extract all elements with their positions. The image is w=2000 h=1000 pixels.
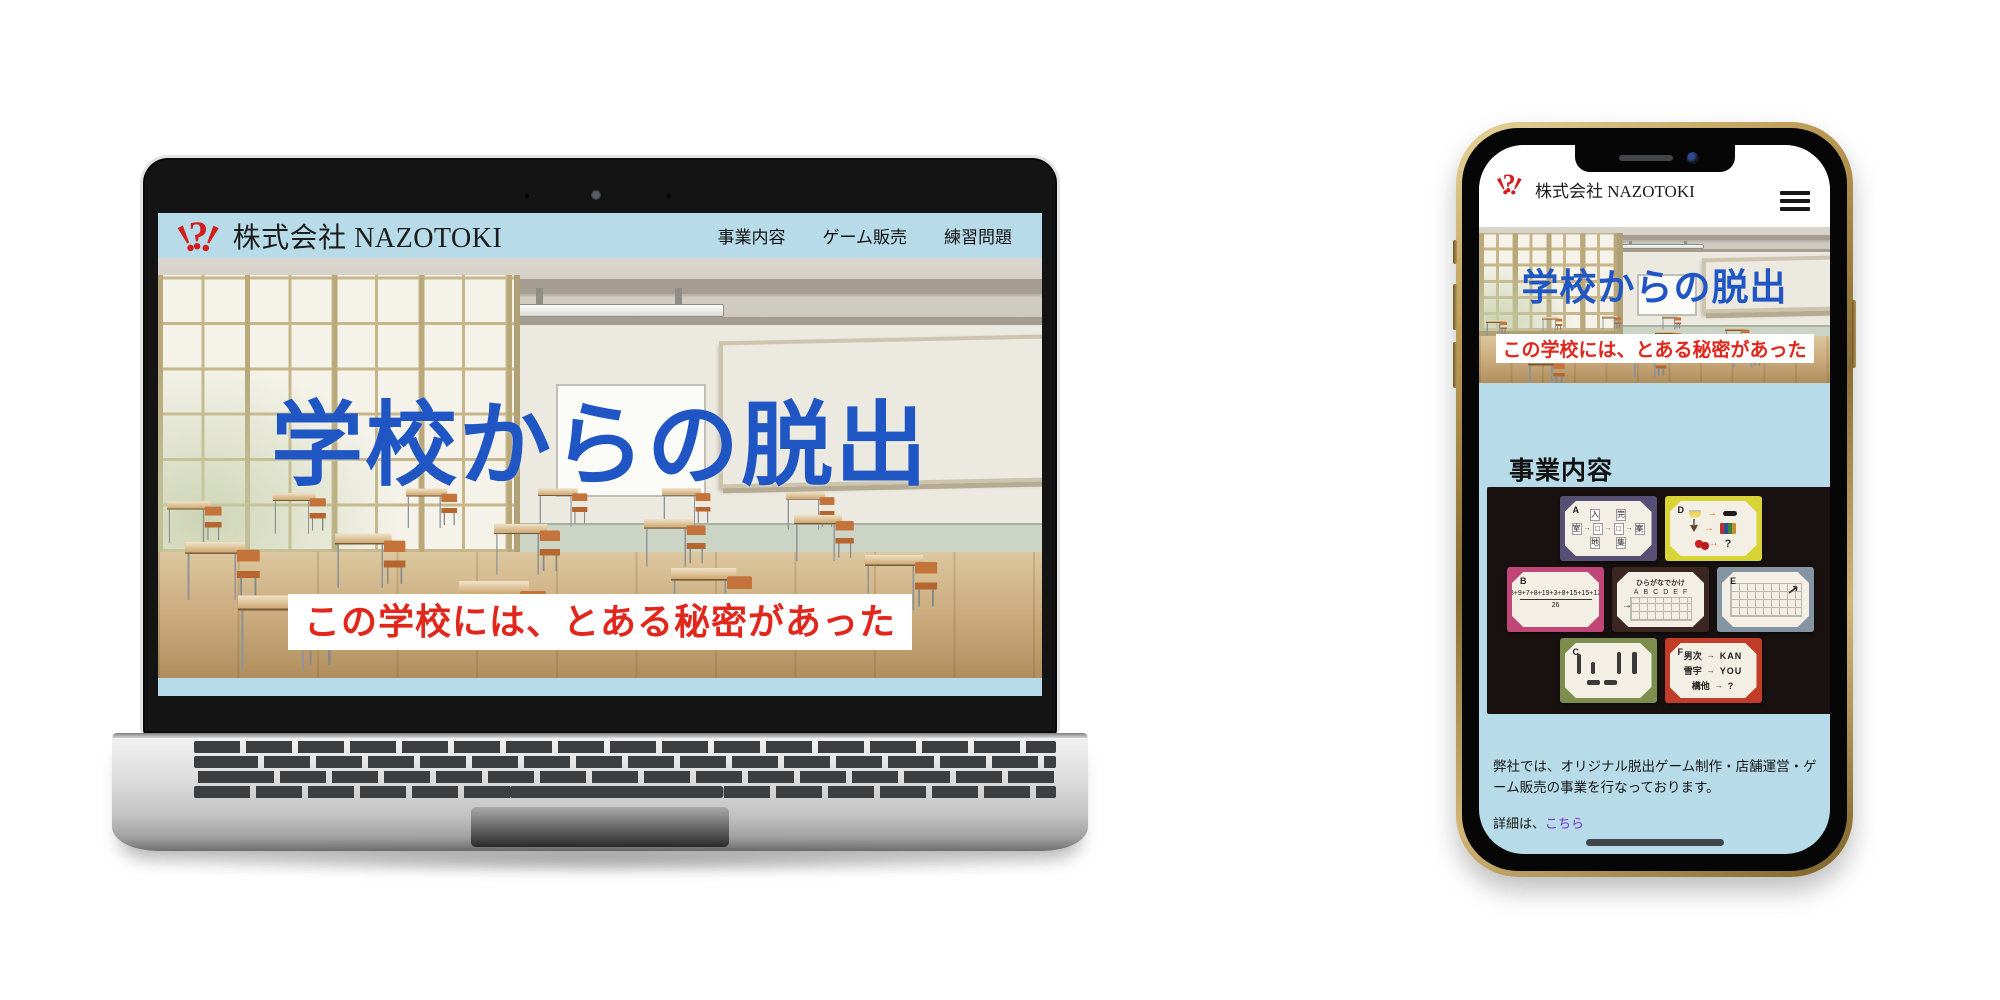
desk	[1542, 314, 1562, 332]
business-section-heading: 事業内容	[1509, 451, 1613, 487]
laptop-sensor-dot	[667, 194, 671, 198]
nav-item-business[interactable]: 事業内容	[718, 223, 786, 248]
mobile-hero-section: 学校からの脱出 この学校には、とある秘密があった	[1479, 227, 1830, 383]
main-nav: 事業内容 ゲーム販売 練習問題	[718, 223, 1013, 248]
front-camera-icon	[1687, 152, 1699, 164]
fluorescent-light	[1612, 244, 1703, 249]
books-icon	[1720, 523, 1736, 534]
detail-prefix: 詳細は、	[1493, 816, 1545, 831]
phone-volume-down-button	[1453, 342, 1457, 388]
laptop-base	[112, 733, 1088, 851]
home-indicator-bar[interactable]	[1586, 839, 1724, 846]
desk	[335, 523, 406, 590]
phone-volume-up-button	[1453, 284, 1457, 330]
fluorescent-light	[494, 304, 724, 317]
laptop-sensor-dot	[525, 194, 529, 198]
spacebar-key	[509, 786, 723, 798]
notch	[1575, 145, 1735, 172]
nav-item-game-sales[interactable]: ゲーム販売	[823, 223, 908, 248]
phone-bezel: ! ? ! 株式会社 NAZOTOKI	[1462, 128, 1847, 871]
phone-screen: ! ? ! 株式会社 NAZOTOKI	[1479, 145, 1830, 854]
desk	[1602, 313, 1621, 330]
phone-power-button	[1852, 300, 1856, 368]
puzzle-card-d: D → → →?	[1665, 496, 1762, 561]
desktop-site-header: ! ? ! 株式会社 NAZOTOKI 事業内容 ゲーム販売 練習問題	[158, 213, 1042, 258]
laptop-trackpad	[471, 807, 729, 847]
page: ! ? ! 株式会社 NAZOTOKI 事業内容 ゲーム販売 練習問題	[0, 0, 2000, 1000]
puzzle-card-hiragana: ひらがなでかけ A B C D E F →	[1612, 567, 1709, 632]
logo-icon[interactable]: ! ? !	[178, 216, 219, 256]
hero-subtitle: この学校には、とある秘密があった	[1495, 334, 1813, 363]
speaker-icon	[1619, 155, 1673, 161]
phone-mute-switch	[1453, 240, 1457, 264]
lamp-icon	[1689, 510, 1701, 518]
puzzle-cards-photo: A 入 完 室 → □ → □	[1487, 487, 1830, 714]
puzzle-card-f: F 男次→KAN 雪宇→YOU 構他→?	[1665, 638, 1762, 703]
hero-title: 学校からの脱出	[158, 400, 1042, 492]
phone-mockup: ! ? ! 株式会社 NAZOTOKI	[1456, 122, 1853, 877]
puzzle-card-b: B 8+9+7+8+19+3+8+15+15+12 26	[1507, 567, 1604, 632]
company-name: 株式会社 NAZOTOKI	[1535, 177, 1695, 202]
strawberry-icon	[1695, 540, 1703, 548]
desk	[494, 514, 560, 577]
laptop-screen: ! ? ! 株式会社 NAZOTOKI 事業内容 ゲーム販売 練習問題	[158, 213, 1042, 696]
keyboard-row	[194, 741, 1056, 753]
hero-subtitle: この学校には、とある秘密があった	[288, 594, 912, 650]
keyboard-row	[194, 756, 1056, 768]
puzzle-card-a: A 入 完 室 → □ → □	[1560, 496, 1657, 561]
business-description: 弊社では、オリジナル脱出ゲーム制作・店舗運営・ゲーム販売の事業を行なっております…	[1493, 757, 1818, 799]
detail-link[interactable]: こちら	[1545, 816, 1584, 831]
nav-item-practice[interactable]: 練習問題	[944, 223, 1012, 248]
answer-grid	[1630, 597, 1692, 621]
keyboard-row	[194, 771, 1056, 783]
puzzle-card-e: E ↗	[1717, 567, 1814, 632]
laptop-shadow	[150, 848, 1050, 874]
caterpillar-icon	[1723, 511, 1737, 516]
laptop-keyboard	[194, 741, 1056, 799]
shop-section-heading: ゲーム販売	[1509, 850, 1643, 854]
puzzle-card-c: C	[1560, 638, 1657, 703]
hero-section: 学校からの脱出 この学校には、とある秘密があった	[158, 258, 1042, 678]
hamburger-menu-icon[interactable]	[1780, 191, 1810, 211]
hero-title: 学校からの脱出	[1479, 257, 1830, 311]
laptop-camera-icon	[591, 190, 601, 200]
company-name: 株式会社 NAZOTOKI	[233, 216, 503, 256]
logo-icon[interactable]: ! ? !	[1497, 171, 1521, 197]
ship-icon	[1690, 525, 1698, 532]
detail-line: 詳細は、こちら	[1493, 813, 1584, 832]
desk	[794, 506, 854, 563]
laptop-lid: ! ? ! 株式会社 NAZOTOKI 事業内容 ゲーム販売 練習問題	[140, 155, 1060, 733]
